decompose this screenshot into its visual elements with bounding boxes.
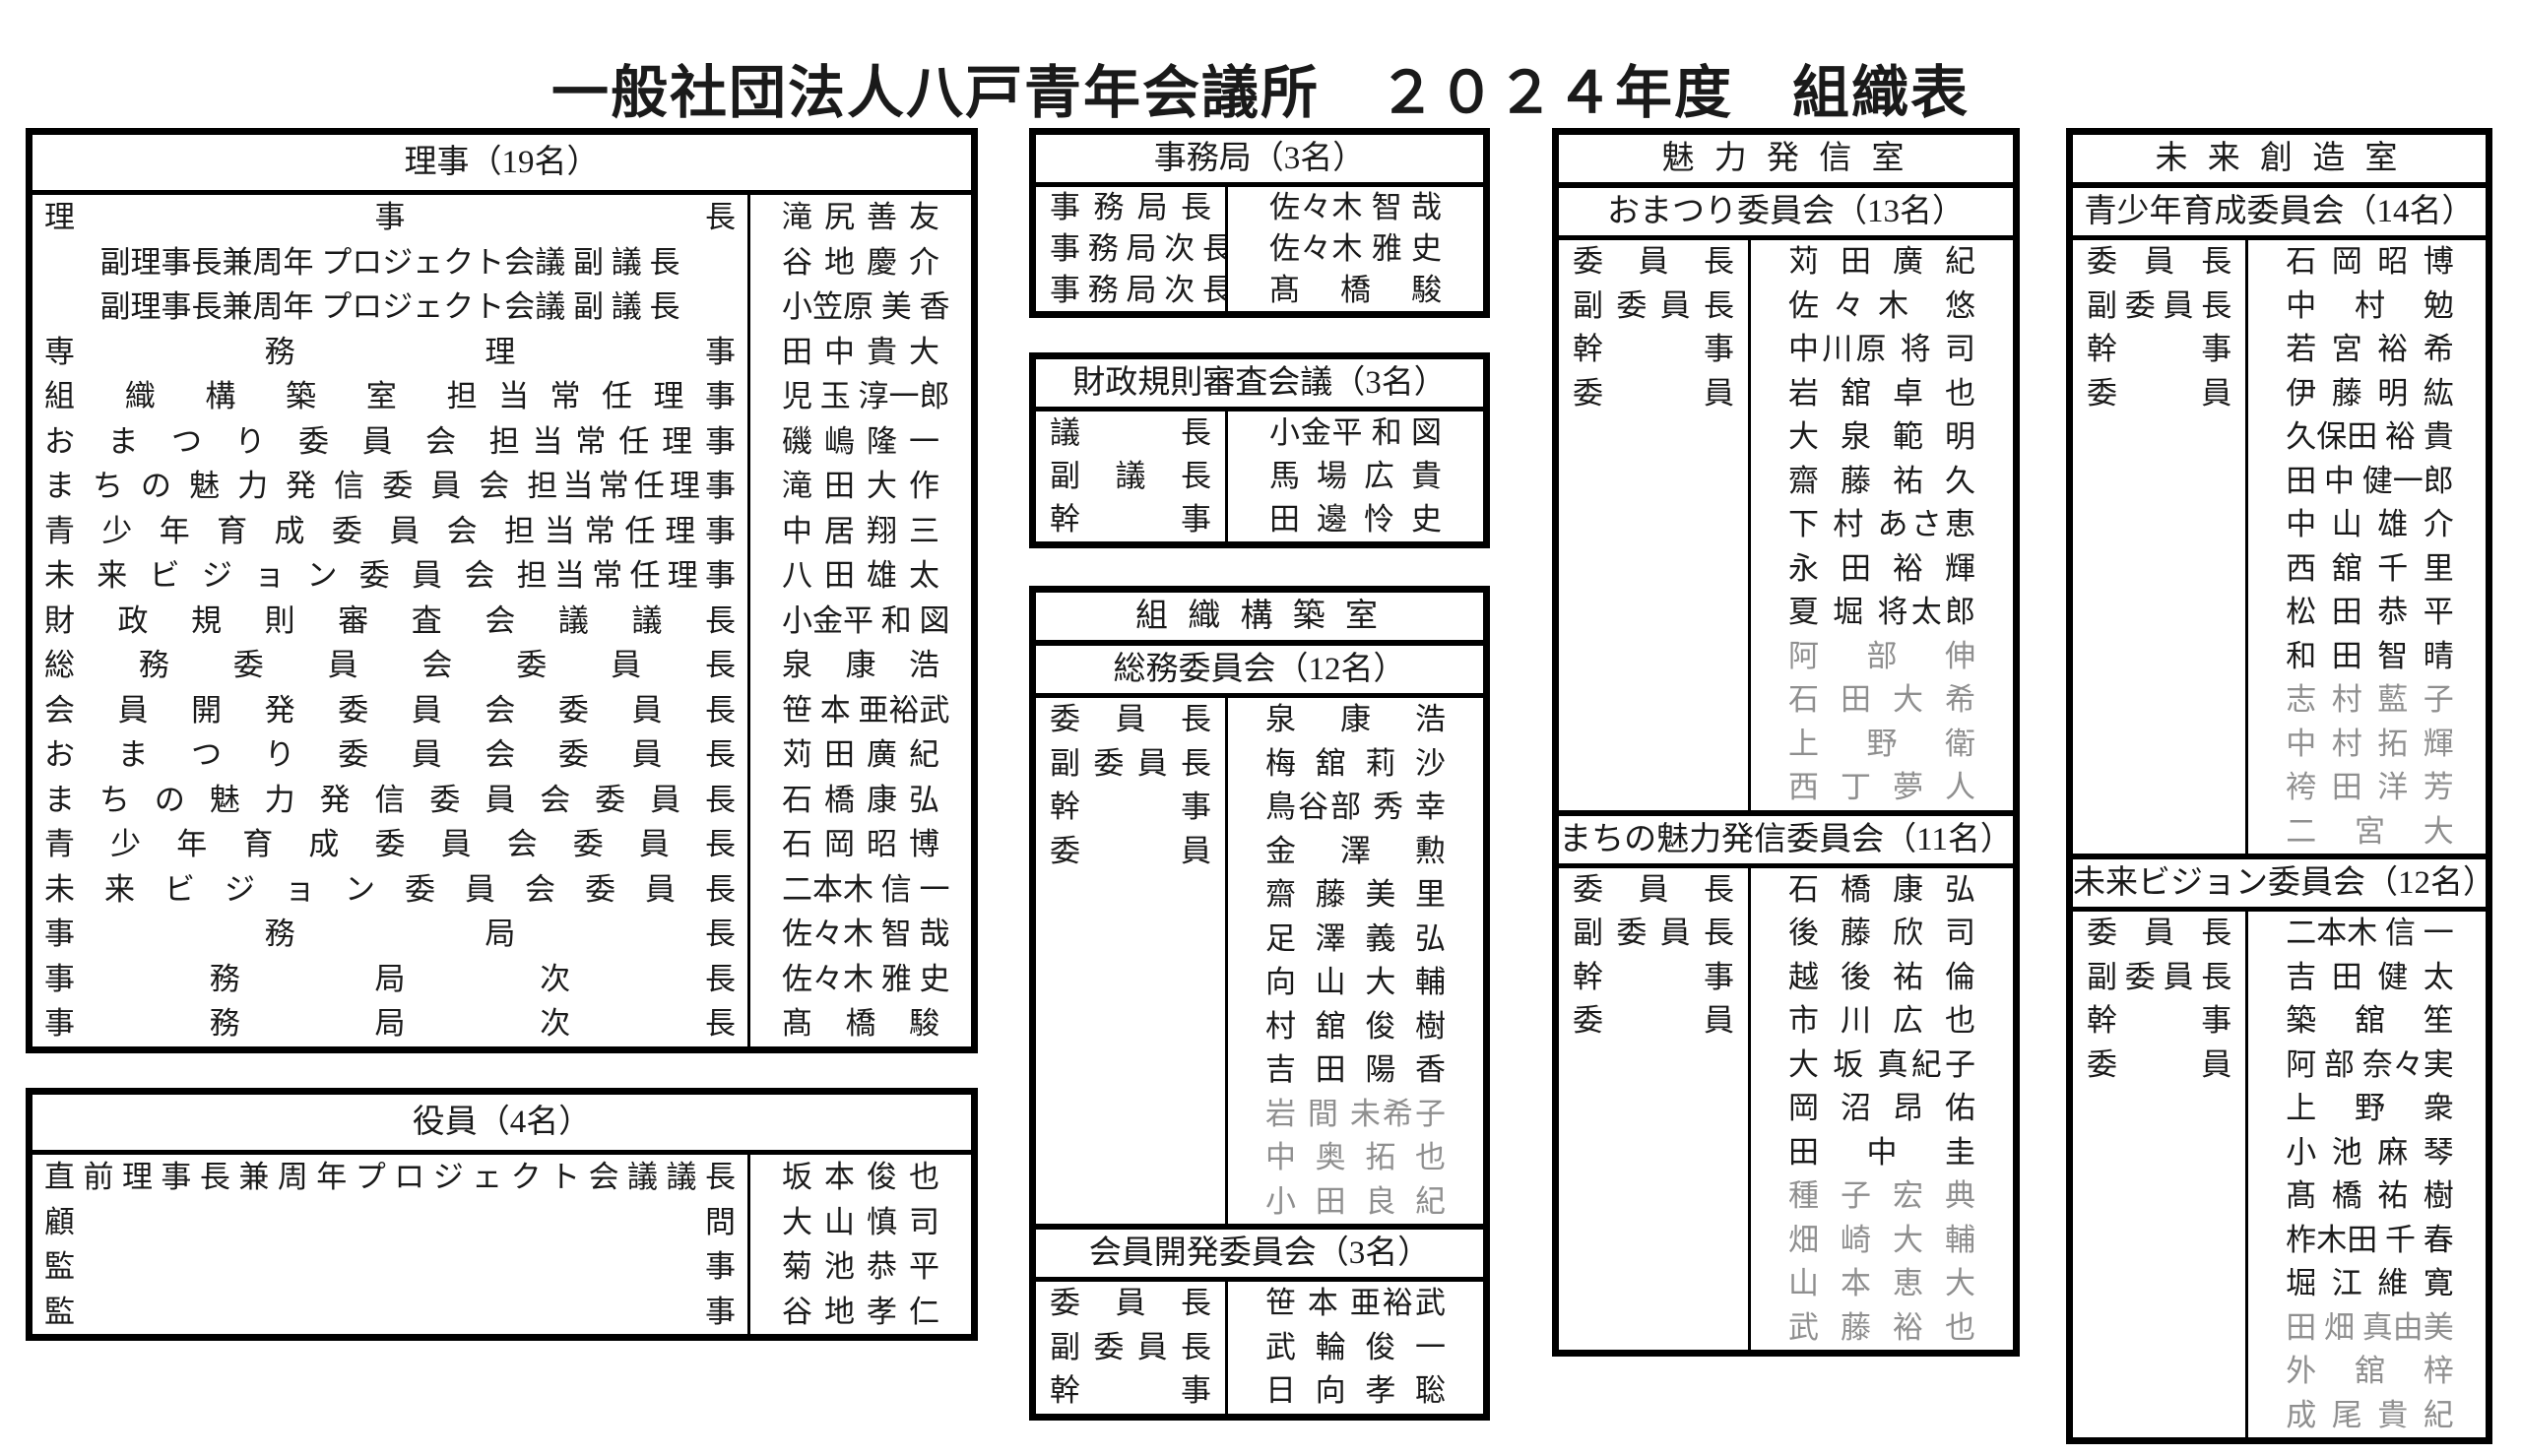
member-name-cell: 堀 江 維 寛 bbox=[2248, 1262, 2491, 1306]
finance-rules-council-header: 財政規則審査会議（3名） bbox=[1036, 359, 1483, 411]
name-cell: 泉 康 浩 bbox=[747, 643, 971, 688]
member-name-cell: 和 田 智 晴 bbox=[2248, 635, 2491, 679]
name-cell: 佐々木 悠 bbox=[1751, 285, 2013, 329]
role-cell: ま ち の 魅 力 発 信 委 員 会 委 員 長 bbox=[32, 778, 747, 823]
member-name-cell: 志 村 藍 子 bbox=[2248, 678, 2491, 723]
role-cell: 副 議 長 bbox=[1036, 455, 1225, 498]
finance-rules-council-table: 財政規則審査会議（3名） 議 長小金平 和 図副 議 長馬 場 広 貴幹 事田 … bbox=[1029, 352, 1490, 548]
member-name-cell: 阿 部 伸 bbox=[1751, 635, 2013, 679]
role-cell: 議 長 bbox=[1036, 411, 1225, 455]
name-cell: 梅 舘 莉 沙 bbox=[1228, 742, 1483, 787]
secretariat-table-body: 事 務 局 長佐々木 智 哉事 務 局 次 長佐々木 雅 史事 務 局 次 長髙… bbox=[1036, 187, 1483, 311]
table-row: 顧 問大 山 慎 司 bbox=[32, 1200, 971, 1245]
name-cell: 中川原 将 司 bbox=[1751, 328, 2013, 372]
committee-role-column: 委 員 長副 委 員 長幹 事委 員 bbox=[1559, 240, 1748, 810]
role-cell: 副 委 員 長 bbox=[1036, 1326, 1225, 1370]
name-cell: 吉 田 健 太 bbox=[2248, 956, 2491, 1000]
member-name-cell: 山 本 恵 大 bbox=[1751, 1262, 2013, 1306]
name-cell: 谷 地 慶 介 bbox=[747, 240, 971, 285]
member-name-cell: 足 澤 義 弘 bbox=[1228, 918, 1483, 962]
member-name-cell: 村 舘 俊 樹 bbox=[1228, 1005, 1483, 1049]
table-row: 副理事長兼周年 プロジェクト会議 副 議 長谷 地 慶 介 bbox=[32, 240, 971, 285]
role-cell: 委 員 長 bbox=[1036, 1282, 1225, 1326]
committee-role-column: 委 員 長副 委 員 長幹 事委 員 bbox=[2073, 240, 2245, 854]
role-cell: 事 務 局 長 bbox=[32, 912, 747, 957]
name-cell: 若 宮 裕 希 bbox=[2248, 328, 2491, 372]
role-cell: 未 来 ビ ジ ョ ン 委 員 会 担当常任理事 bbox=[32, 553, 747, 599]
committee-table: 青少年育成委員会（14名）委 員 長副 委 員 長幹 事委 員石 岡 昭 博中 … bbox=[2073, 188, 2486, 854]
committee-name-column: 泉 康 浩梅 舘 莉 沙鳥谷部 秀 幸金 澤 勲齋 藤 美 里足 澤 義 弘向 … bbox=[1225, 698, 1483, 1224]
role-cell: 委 員 長 bbox=[2073, 912, 2245, 956]
table-row: 事 務 局 次 長髙 橋 駿 bbox=[1036, 270, 1483, 311]
role-cell: 副 委 員 長 bbox=[1559, 285, 1748, 329]
name-cell: 築 舘 笙 bbox=[2248, 999, 2491, 1044]
secretariat-table-header: 事務局（3名） bbox=[1036, 135, 1483, 187]
member-name-cell: 永 田 裕 輝 bbox=[1751, 547, 2013, 592]
board-table-header: 理事（19名） bbox=[32, 135, 971, 195]
committee-body: 委 員 長副 委 員 長幹 事委 員苅 田 廣 紀佐々木 悠中川原 将 司岩 舘… bbox=[1559, 240, 2013, 810]
name-cell: 石 岡 昭 博 bbox=[2248, 240, 2491, 285]
committee-header: 未来ビジョン委員会（12名） bbox=[2073, 859, 2486, 912]
table-row: 専 務 理 事田 中 貴 大 bbox=[32, 330, 971, 375]
table-row: 未 来 ビ ジ ョ ン 委 員 会 担当常任理事八 田 雄 太 bbox=[32, 553, 971, 599]
role-cell: 幹 事 bbox=[1559, 328, 1748, 372]
room-attraction-promotion: 魅 力 発 信 室 おまつり委員会（13名）委 員 長副 委 員 長幹 事委 員… bbox=[1552, 128, 2020, 1357]
role-cell: 理 事 長 bbox=[32, 195, 747, 240]
member-name-cell: 二 宮 大 bbox=[2248, 810, 2491, 855]
member-name-cell: 大 泉 範 明 bbox=[1751, 415, 2013, 460]
room-future-creation: 未 来 創 造 室 青少年育成委員会（14名）委 員 長副 委 員 長幹 事委 … bbox=[2066, 128, 2492, 1444]
table-row: 事 務 局 長佐々木 智 哉 bbox=[1036, 187, 1483, 228]
committee-table: 総務委員会（12名）委 員 長副 委 員 長幹 事委 員泉 康 浩梅 舘 莉 沙… bbox=[1036, 646, 1483, 1224]
member-name-cell: 大 坂 真紀子 bbox=[1751, 1044, 2013, 1088]
member-role-cell: 委 員 bbox=[1559, 999, 1748, 1350]
name-cell: 髙 橋 駿 bbox=[1225, 270, 1483, 311]
role-cell: ま ち の 魅 力 発 信 委 員 会 担当常任理事 bbox=[32, 464, 747, 509]
member-name-cell: 外 舘 梓 bbox=[2248, 1350, 2491, 1394]
committee-body: 委 員 長副 委 員 長幹 事笹 本 亜裕武武 輪 俊 一日 向 孝 聡 bbox=[1036, 1282, 1483, 1414]
committee-header: おまつり委員会（13名） bbox=[1559, 188, 2013, 240]
role-cell: 事 務 局 次 長 bbox=[1036, 270, 1225, 311]
member-name-cell: 髙 橋 祐 樹 bbox=[2248, 1174, 2491, 1219]
table-row: 議 長小金平 和 図 bbox=[1036, 411, 1483, 455]
officers-table-header: 役員（4名） bbox=[32, 1095, 971, 1155]
role-cell: 青 少 年 育 成 委 員 会 担当常任理事 bbox=[32, 509, 747, 554]
role-cell: 幹 事 bbox=[1559, 956, 1748, 1000]
committee-name-column: 笹 本 亜裕武武 輪 俊 一日 向 孝 聡 bbox=[1225, 1282, 1483, 1414]
room-organization-building: 組 織 構 築 室 総務委員会（12名）委 員 長副 委 員 長幹 事委 員泉 … bbox=[1029, 586, 1490, 1421]
name-cell: 鳥谷部 秀 幸 bbox=[1228, 786, 1483, 830]
committee-name-column: 二本木 信 一吉 田 健 太築 舘 笙阿 部 奈々実上 野 衆小 池 麻 琴髙 … bbox=[2245, 912, 2491, 1437]
member-name-cell: 岩 舘 卓 也 bbox=[1751, 372, 2013, 416]
role-cell: 事 務 局 長 bbox=[1036, 187, 1225, 228]
name-cell: 坂 本 俊 也 bbox=[747, 1155, 971, 1200]
committee-body: 委 員 長副 委 員 長幹 事委 員石 岡 昭 博中 村 勉若 宮 裕 希伊 藤… bbox=[2073, 240, 2486, 854]
name-cell: 苅 田 廣 紀 bbox=[747, 732, 971, 778]
name-cell: 石 岡 昭 博 bbox=[747, 822, 971, 867]
room-committees: おまつり委員会（13名）委 員 長副 委 員 長幹 事委 員苅 田 廣 紀佐々木… bbox=[1559, 188, 2013, 1350]
name-cell: 馬 場 広 貴 bbox=[1225, 455, 1483, 498]
role-cell: 顧 問 bbox=[32, 1200, 747, 1245]
member-name-cell: 中 山 雄 介 bbox=[2248, 503, 2491, 547]
name-cell: 小笠原 美 香 bbox=[747, 285, 971, 330]
name-cell: 石 橋 康 弘 bbox=[747, 778, 971, 823]
finance-rules-council-body: 議 長小金平 和 図副 議 長馬 場 広 貴幹 事田 邊 怜 史 bbox=[1036, 411, 1483, 541]
name-cell: 泉 康 浩 bbox=[1228, 698, 1483, 742]
member-name-cell: 柞木田 千 春 bbox=[2248, 1219, 2491, 1263]
committee-table: 未来ビジョン委員会（12名）委 員 長副 委 員 長幹 事委 員二本木 信 一吉… bbox=[2073, 854, 2486, 1437]
committee-header: 会員開発委員会（3名） bbox=[1036, 1230, 1483, 1282]
member-name-cell: 石 田 大 希 bbox=[1751, 678, 2013, 723]
name-cell: 滝 田 大 作 bbox=[747, 464, 971, 509]
room-committees: 総務委員会（12名）委 員 長副 委 員 長幹 事委 員泉 康 浩梅 舘 莉 沙… bbox=[1036, 646, 1483, 1414]
table-row: ま ち の 魅 力 発 信 委 員 会 担当常任理事滝 田 大 作 bbox=[32, 464, 971, 509]
name-cell: 笹 本 亜裕武 bbox=[1228, 1282, 1483, 1326]
member-role-cell: 委 員 bbox=[2073, 1044, 2245, 1438]
member-name-cell: 下 村 あさ恵 bbox=[1751, 503, 2013, 547]
committee-header: 総務委員会（12名） bbox=[1036, 646, 1483, 698]
member-name-cell: 中 村 拓 輝 bbox=[2248, 723, 2491, 767]
role-cell: 副理事長兼周年 プロジェクト会議 副 議 長 bbox=[32, 285, 747, 330]
table-row: 総 務 委 員 会 委 員 長泉 康 浩 bbox=[32, 643, 971, 688]
role-cell: 幹 事 bbox=[1036, 786, 1225, 830]
name-cell: 大 山 慎 司 bbox=[747, 1200, 971, 1245]
committee-name-column: 石 岡 昭 博中 村 勉若 宮 裕 希伊 藤 明 紘久保田 裕 貴田 中 健一郎… bbox=[2245, 240, 2491, 854]
room-committees: 青少年育成委員会（14名）委 員 長副 委 員 長幹 事委 員石 岡 昭 博中 … bbox=[2073, 188, 2486, 1437]
member-name-cell: 上 野 衆 bbox=[2248, 1087, 2491, 1131]
table-row: 未 来 ビ ジ ョ ン 委 員 会 委 員 長二本木 信 一 bbox=[32, 867, 971, 913]
officers-table-body: 直 前 理 事 長 兼 周 年 プ ロ ジ ェ ク ト 会 議 議 長坂 本 俊… bbox=[32, 1155, 971, 1334]
role-cell: お ま つ り 委 員 会 担当常任理事 bbox=[32, 419, 747, 465]
member-name-cell: 種 子 宏 典 bbox=[1751, 1174, 2013, 1219]
name-cell: 佐々木 智 哉 bbox=[1225, 187, 1483, 228]
member-role-cell: 委 員 bbox=[1036, 830, 1225, 1225]
table-row: 財 政 規 則 審 査 会 議 議 長小金平 和 図 bbox=[32, 599, 971, 644]
committee-table: まちの魅力発信委員会（11名）委 員 長副 委 員 長幹 事委 員石 橋 康 弘… bbox=[1559, 810, 2013, 1351]
member-name-cell: 松 田 恭 平 bbox=[2248, 591, 2491, 635]
name-cell: 越 後 祐 倫 bbox=[1751, 956, 2013, 1000]
name-cell: 田 邊 怜 史 bbox=[1225, 498, 1483, 541]
member-name-cell: 上 野 衛 bbox=[1751, 723, 2013, 767]
member-name-cell: 畑 崎 大 輔 bbox=[1751, 1219, 2013, 1263]
role-cell: 副 委 員 長 bbox=[1559, 912, 1748, 956]
role-cell: 幹 事 bbox=[1036, 1369, 1225, 1414]
table-row: 副 議 長馬 場 広 貴 bbox=[1036, 455, 1483, 498]
member-name-cell: 伊 藤 明 紘 bbox=[2248, 372, 2491, 416]
name-cell: 中 居 翔 三 bbox=[747, 509, 971, 554]
role-cell: 事 務 局 次 長 bbox=[32, 957, 747, 1002]
name-cell: 児 玉 淳一郎 bbox=[747, 374, 971, 419]
table-row: 監 事谷 地 孝 仁 bbox=[32, 1290, 971, 1335]
table-row: 事 務 局 次 長佐々木 雅 史 bbox=[32, 957, 971, 1002]
role-cell: 青 少 年 育 成 委 員 会 委 員 長 bbox=[32, 822, 747, 867]
room-header: 魅 力 発 信 室 bbox=[1559, 135, 2013, 188]
member-name-cell: 袴 田 洋 芳 bbox=[2248, 766, 2491, 810]
table-row: 青 少 年 育 成 委 員 会 担当常任理事中 居 翔 三 bbox=[32, 509, 971, 554]
table-row: 直 前 理 事 長 兼 周 年 プ ロ ジ ェ ク ト 会 議 議 長坂 本 俊… bbox=[32, 1155, 971, 1200]
name-cell: 二本木 信 一 bbox=[747, 867, 971, 913]
table-row: 副理事長兼周年 プロジェクト会議 副 議 長小笠原 美 香 bbox=[32, 285, 971, 330]
member-name-cell: 市 川 広 也 bbox=[1751, 999, 2013, 1044]
role-cell: お ま つ り 委 員 会 委 員 長 bbox=[32, 732, 747, 778]
table-row: お ま つ り 委 員 会 担当常任理事磯 嶋 隆 一 bbox=[32, 419, 971, 465]
member-name-cell: 齋 藤 祐 久 bbox=[1751, 460, 2013, 504]
role-cell: 直 前 理 事 長 兼 周 年 プ ロ ジ ェ ク ト 会 議 議 長 bbox=[32, 1155, 747, 1200]
role-cell: 委 員 長 bbox=[1036, 698, 1225, 742]
name-cell: 佐々木 雅 史 bbox=[747, 957, 971, 1002]
name-cell: 石 橋 康 弘 bbox=[1751, 868, 2013, 913]
role-cell: 副 委 員 長 bbox=[1036, 742, 1225, 787]
committee-table: 会員開発委員会（3名）委 員 長副 委 員 長幹 事笹 本 亜裕武武 輪 俊 一… bbox=[1036, 1224, 1483, 1414]
committee-role-column: 委 員 長副 委 員 長幹 事 bbox=[1036, 1282, 1225, 1414]
committee-name-column: 石 橋 康 弘後 藤 欣 司越 後 祐 倫市 川 広 也大 坂 真紀子岡 沼 昂… bbox=[1748, 868, 2013, 1351]
member-name-cell: 田 中 健一郎 bbox=[2248, 460, 2491, 504]
committee-role-column: 委 員 長副 委 員 長幹 事委 員 bbox=[2073, 912, 2245, 1437]
member-name-cell: 阿 部 奈々実 bbox=[2248, 1044, 2491, 1088]
name-cell: 髙 橋 駿 bbox=[747, 1001, 971, 1046]
role-cell: 副理事長兼周年 プロジェクト会議 副 議 長 bbox=[32, 240, 747, 285]
table-row: 監 事菊 池 恭 平 bbox=[32, 1244, 971, 1290]
board-table: 理事（19名） 理 事 長滝 尻 善 友副理事長兼周年 プロジェクト会議 副 議… bbox=[26, 128, 978, 1053]
role-cell: 副 委 員 長 bbox=[2073, 956, 2245, 1000]
name-cell: 八 田 雄 太 bbox=[747, 553, 971, 599]
name-cell: 二本木 信 一 bbox=[2248, 912, 2491, 956]
role-cell: 事 務 局 次 長 bbox=[32, 1001, 747, 1046]
role-cell: 財 政 規 則 審 査 会 議 議 長 bbox=[32, 599, 747, 644]
table-row: 組 織 構 築 室 担当常任理事児 玉 淳一郎 bbox=[32, 374, 971, 419]
table-row: 事 務 局 次 長髙 橋 駿 bbox=[32, 1001, 971, 1046]
name-cell: 磯 嶋 隆 一 bbox=[747, 419, 971, 465]
member-name-cell: 夏 堀 将太郎 bbox=[1751, 591, 2013, 635]
table-row: ま ち の 魅 力 発 信 委 員 会 委 員 長石 橋 康 弘 bbox=[32, 778, 971, 823]
member-name-cell: 成 尾 貴 紀 bbox=[2248, 1394, 2491, 1438]
role-cell: 幹 事 bbox=[2073, 328, 2245, 372]
name-cell: 菊 池 恭 平 bbox=[747, 1244, 971, 1290]
org-chart-page: { "title": "一般社団法人八戸青年会議所 ２０２４年度 組織表", "… bbox=[0, 0, 2521, 1456]
name-cell: 小金平 和 図 bbox=[1225, 411, 1483, 455]
member-name-cell: 久保田 裕 貴 bbox=[2248, 415, 2491, 460]
name-cell: 日 向 孝 聡 bbox=[1228, 1369, 1483, 1414]
name-cell: 苅 田 廣 紀 bbox=[1751, 240, 2013, 285]
role-cell: 幹 事 bbox=[1036, 498, 1225, 541]
member-name-cell: 岡 沼 昂 佑 bbox=[1751, 1087, 2013, 1131]
name-cell: 笹 本 亜裕武 bbox=[747, 688, 971, 733]
role-cell: 副 委 員 長 bbox=[2073, 285, 2245, 329]
committee-header: まちの魅力発信委員会（11名） bbox=[1559, 816, 2013, 868]
name-cell: 中 村 勉 bbox=[2248, 285, 2491, 329]
role-cell: 事 務 局 次 長 bbox=[1036, 228, 1225, 270]
page-title: 一般社団法人八戸青年会議所 ２０２４年度 組織表 bbox=[0, 46, 2521, 117]
member-name-cell: 西 丁 夢 人 bbox=[1751, 766, 2013, 810]
officers-table: 役員（4名） 直 前 理 事 長 兼 周 年 プ ロ ジ ェ ク ト 会 議 議… bbox=[26, 1088, 978, 1341]
role-cell: 幹 事 bbox=[2073, 999, 2245, 1044]
role-cell: 総 務 委 員 会 委 員 長 bbox=[32, 643, 747, 688]
name-cell: 田 中 貴 大 bbox=[747, 330, 971, 375]
member-name-cell: 田 畑 真由美 bbox=[2248, 1306, 2491, 1351]
name-cell: 武 輪 俊 一 bbox=[1228, 1326, 1483, 1370]
member-name-cell: 齋 藤 美 里 bbox=[1228, 873, 1483, 918]
name-cell: 谷 地 孝 仁 bbox=[747, 1290, 971, 1335]
member-name-cell: 中 奥 拓 也 bbox=[1228, 1136, 1483, 1180]
member-name-cell: 金 澤 勲 bbox=[1228, 830, 1483, 874]
role-cell: 未 来 ビ ジ ョ ン 委 員 会 委 員 長 bbox=[32, 867, 747, 913]
member-role-cell: 委 員 bbox=[1559, 372, 1748, 810]
member-name-cell: 向 山 大 輔 bbox=[1228, 961, 1483, 1005]
name-cell: 滝 尻 善 友 bbox=[747, 195, 971, 240]
table-row: 幹 事田 邊 怜 史 bbox=[1036, 498, 1483, 541]
table-row: 理 事 長滝 尻 善 友 bbox=[32, 195, 971, 240]
table-row: 青 少 年 育 成 委 員 会 委 員 長石 岡 昭 博 bbox=[32, 822, 971, 867]
role-cell: 会 員 開 発 委 員 会 委 員 長 bbox=[32, 688, 747, 733]
role-cell: 監 事 bbox=[32, 1290, 747, 1335]
role-cell: 組 織 構 築 室 担当常任理事 bbox=[32, 374, 747, 419]
committee-table: おまつり委員会（13名）委 員 長副 委 員 長幹 事委 員苅 田 廣 紀佐々木… bbox=[1559, 188, 2013, 810]
role-cell: 監 事 bbox=[32, 1244, 747, 1290]
committee-name-column: 苅 田 廣 紀佐々木 悠中川原 将 司岩 舘 卓 也大 泉 範 明齋 藤 祐 久… bbox=[1748, 240, 2013, 810]
member-name-cell: 岩 間 未希子 bbox=[1228, 1093, 1483, 1137]
member-name-cell: 小 田 良 紀 bbox=[1228, 1180, 1483, 1225]
role-cell: 専 務 理 事 bbox=[32, 330, 747, 375]
role-cell: 委 員 長 bbox=[1559, 240, 1748, 285]
table-row: 事 務 局 長佐々木 智 哉 bbox=[32, 912, 971, 957]
committee-body: 委 員 長副 委 員 長幹 事委 員石 橋 康 弘後 藤 欣 司越 後 祐 倫市… bbox=[1559, 868, 2013, 1351]
member-name-cell: 西 舘 千 里 bbox=[2248, 547, 2491, 592]
role-cell: 委 員 長 bbox=[2073, 240, 2245, 285]
table-row: 事 務 局 次 長佐々木 雅 史 bbox=[1036, 228, 1483, 270]
committee-body: 委 員 長副 委 員 長幹 事委 員泉 康 浩梅 舘 莉 沙鳥谷部 秀 幸金 澤… bbox=[1036, 698, 1483, 1224]
table-row: 会 員 開 発 委 員 会 委 員 長笹 本 亜裕武 bbox=[32, 688, 971, 733]
name-cell: 佐々木 智 哉 bbox=[747, 912, 971, 957]
role-cell: 委 員 長 bbox=[1559, 868, 1748, 913]
member-name-cell: 小 池 麻 琴 bbox=[2248, 1131, 2491, 1175]
committee-body: 委 員 長副 委 員 長幹 事委 員二本木 信 一吉 田 健 太築 舘 笙阿 部… bbox=[2073, 912, 2486, 1437]
committee-role-column: 委 員 長副 委 員 長幹 事委 員 bbox=[1036, 698, 1225, 1224]
secretariat-table: 事務局（3名） 事 務 局 長佐々木 智 哉事 務 局 次 長佐々木 雅 史事 … bbox=[1029, 128, 1490, 318]
room-header: 未 来 創 造 室 bbox=[2073, 135, 2486, 188]
member-name-cell: 吉 田 陽 香 bbox=[1228, 1048, 1483, 1093]
member-name-cell: 田 中 圭 bbox=[1751, 1131, 2013, 1175]
name-cell: 後 藤 欣 司 bbox=[1751, 912, 2013, 956]
committee-role-column: 委 員 長副 委 員 長幹 事委 員 bbox=[1559, 868, 1748, 1351]
board-table-body: 理 事 長滝 尻 善 友副理事長兼周年 プロジェクト会議 副 議 長谷 地 慶 … bbox=[32, 195, 971, 1046]
name-cell: 佐々木 雅 史 bbox=[1225, 228, 1483, 270]
name-cell: 小金平 和 図 bbox=[747, 599, 971, 644]
member-role-cell: 委 員 bbox=[2073, 372, 2245, 855]
member-name-cell: 武 藤 裕 也 bbox=[1751, 1306, 2013, 1351]
committee-header: 青少年育成委員会（14名） bbox=[2073, 188, 2486, 240]
room-header: 組 織 構 築 室 bbox=[1036, 593, 1483, 646]
table-row: お ま つ り 委 員 会 委 員 長苅 田 廣 紀 bbox=[32, 732, 971, 778]
